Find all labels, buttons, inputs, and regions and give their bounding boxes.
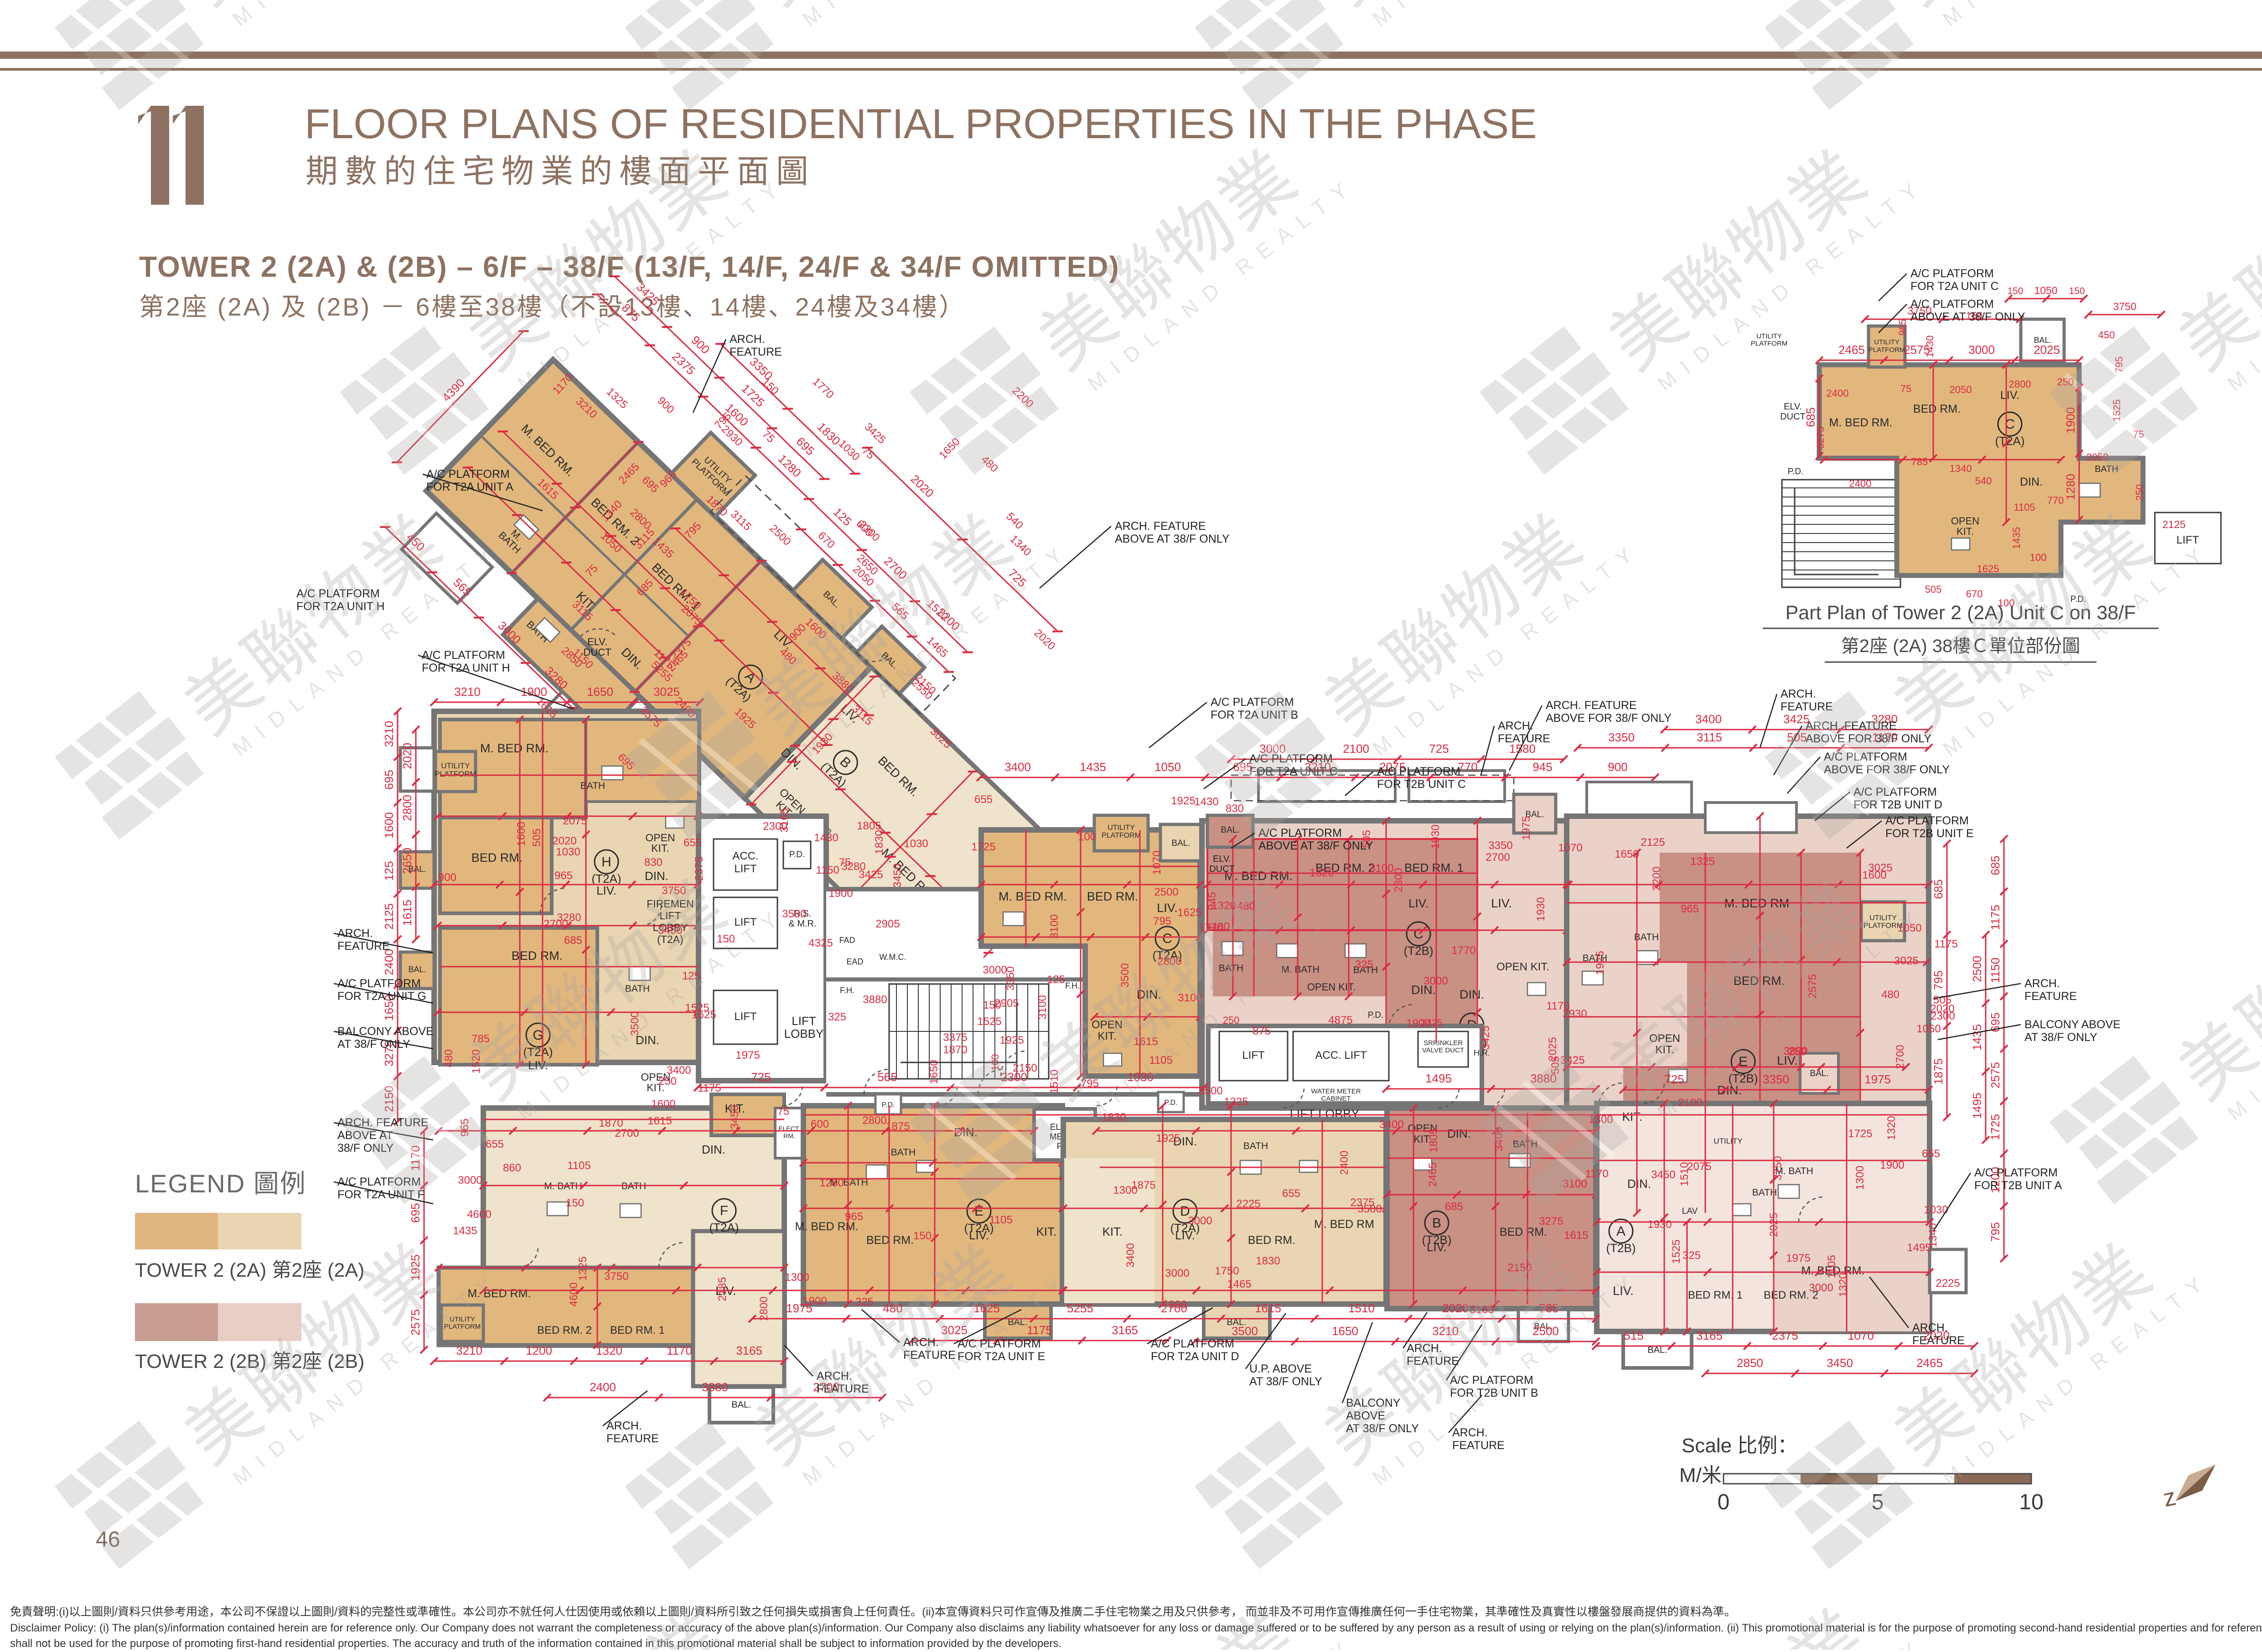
svg-text:1300: 1300 [1854, 1165, 1866, 1190]
svg-text:期數的住宅物業的樓面平面圖: 期數的住宅物業的樓面平面圖 [305, 154, 815, 190]
svg-text:P.D.: P.D. [881, 1101, 895, 1109]
svg-text:450: 450 [2098, 329, 2115, 341]
svg-text:BAL.: BAL. [1171, 839, 1190, 848]
svg-text:A/C PLATFORM: A/C PLATFORM [1910, 298, 1994, 311]
svg-text:免責聲明:(i)以上圖則/資料只供參考用途，本公司不保證以上: 免責聲明:(i)以上圖則/資料只供參考用途，本公司不保證以上圖則/資料的完整性或… [10, 1605, 1736, 1618]
svg-text:3210: 3210 [454, 685, 481, 699]
svg-text:M. BED RM: M. BED RM [1314, 1218, 1374, 1231]
svg-text:1170: 1170 [667, 1344, 692, 1357]
svg-text:3400: 3400 [1379, 1119, 1403, 1131]
svg-text:0: 0 [1718, 1490, 1730, 1514]
svg-text:LIV.: LIV. [1427, 1240, 1447, 1254]
svg-text:2150: 2150 [1013, 1062, 1037, 1074]
svg-text:FEATURE: FEATURE [606, 1432, 659, 1445]
svg-text:505: 505 [531, 829, 543, 847]
svg-text:ABOVE AT 38/F ONLY: ABOVE AT 38/F ONLY [1115, 533, 1230, 545]
svg-text:EAD: EAD [846, 957, 863, 966]
svg-text:600: 600 [811, 1118, 829, 1130]
svg-text:1870: 1870 [943, 1044, 967, 1056]
svg-text:325: 325 [1682, 1249, 1701, 1262]
svg-text:A/C PLATFORM: A/C PLATFORM [1974, 1166, 2058, 1179]
svg-text:2700: 2700 [1894, 1045, 1906, 1069]
svg-text:3400: 3400 [1695, 712, 1722, 726]
svg-text:2025: 2025 [2034, 343, 2060, 357]
svg-text:655: 655 [1282, 1187, 1300, 1200]
svg-text:KIT.: KIT. [1957, 526, 1974, 537]
svg-text:325: 325 [855, 1296, 874, 1308]
svg-text:PLATFORM: PLATFORM [435, 770, 476, 778]
svg-text:1320: 1320 [1885, 1116, 1898, 1140]
svg-text:1930: 1930 [1429, 824, 1442, 849]
svg-text:SRRINKLER: SRRINKLER [1423, 1039, 1463, 1047]
svg-text:1280: 1280 [819, 1177, 844, 1189]
svg-text:3000: 3000 [1809, 1282, 1833, 1294]
svg-text:2575: 2575 [1988, 1062, 2002, 1088]
svg-text:125: 125 [382, 861, 396, 880]
svg-text:1430: 1430 [1194, 796, 1218, 808]
svg-text:A/C PLATFORM: A/C PLATFORM [1885, 814, 1969, 827]
svg-text:LAV: LAV [1682, 1207, 1698, 1216]
svg-text:2650: 2650 [400, 848, 414, 874]
svg-text:UTILITY: UTILITY [1874, 338, 1900, 346]
svg-text:ACC.: ACC. [732, 850, 758, 862]
svg-text:685: 685 [1931, 879, 1945, 899]
svg-text:10: 10 [2019, 1490, 2043, 1514]
svg-text:1975: 1975 [1520, 816, 1532, 840]
svg-text:150: 150 [566, 1197, 584, 1209]
svg-text:3500: 3500 [1198, 1085, 1222, 1097]
svg-text:PLATFORM: PLATFORM [1102, 832, 1141, 839]
svg-text:FEATURE: FEATURE [337, 940, 390, 953]
svg-text:FEATURE: FEATURE [2024, 990, 2077, 1003]
svg-text:BED RM.: BED RM. [866, 1234, 914, 1247]
svg-text:900: 900 [1608, 760, 1627, 774]
svg-text:FOR T2B UNIT E: FOR T2B UNIT E [1885, 827, 1974, 840]
svg-text:2400: 2400 [1849, 478, 1872, 489]
svg-text:LIFT: LIFT [734, 863, 757, 875]
svg-text:3100: 3100 [1369, 862, 1393, 875]
svg-text:BATH: BATH [891, 1147, 916, 1158]
svg-text:(T2A): (T2A) [1995, 434, 2025, 448]
svg-text:ABOVE AT 38/F ONLY: ABOVE AT 38/F ONLY [1258, 839, 1373, 852]
svg-text:1510: 1510 [1348, 1301, 1375, 1315]
svg-text:1320: 1320 [1310, 867, 1334, 879]
svg-text:770: 770 [2047, 495, 2064, 506]
svg-text:AT 38/F ONLY: AT 38/F ONLY [337, 1038, 410, 1051]
svg-text:ARCH.: ARCH. [1498, 720, 1533, 732]
svg-text:75: 75 [1900, 383, 1911, 394]
svg-text:1175: 1175 [1027, 1323, 1052, 1337]
svg-text:CABINET: CABINET [1321, 1095, 1351, 1103]
svg-text:1525: 1525 [1670, 1239, 1682, 1264]
svg-text:A/C PLATFORM: A/C PLATFORM [1151, 1337, 1234, 1350]
svg-text:W.M.C.: W.M.C. [880, 953, 906, 962]
svg-text:3400: 3400 [1004, 760, 1031, 774]
svg-text:1175: 1175 [698, 1082, 721, 1094]
svg-text:2400: 2400 [382, 949, 396, 975]
svg-text:565: 565 [877, 1070, 897, 1084]
svg-text:BED RM.: BED RM. [1087, 890, 1139, 903]
svg-text:3000: 3000 [1188, 1215, 1212, 1227]
svg-text:ELV.: ELV. [1213, 854, 1231, 864]
svg-text:3350: 3350 [1004, 966, 1017, 990]
svg-text:BED RM. 2: BED RM. 2 [537, 1324, 592, 1336]
svg-text:3375: 3375 [943, 1031, 967, 1044]
svg-text:1105: 1105 [1826, 1255, 1838, 1279]
svg-text:FOR T2A UNIT C: FOR T2A UNIT C [1910, 280, 1999, 293]
svg-text:2185: 2185 [716, 1277, 729, 1301]
svg-text:2125: 2125 [2162, 518, 2185, 530]
svg-text:BED RM.: BED RM. [1913, 403, 1961, 415]
svg-text:1030: 1030 [904, 838, 928, 850]
svg-text:505: 505 [1925, 584, 1942, 595]
svg-text:1900: 1900 [1880, 1159, 1904, 1171]
svg-text:1495: 1495 [1970, 1093, 1984, 1119]
svg-text:2020: 2020 [552, 835, 576, 847]
svg-text:655: 655 [683, 837, 702, 849]
svg-text:2125: 2125 [1641, 836, 1665, 849]
svg-text:KIT.: KIT. [1036, 1225, 1057, 1238]
svg-text:1070: 1070 [1558, 842, 1582, 854]
svg-text:P.D.: P.D. [789, 850, 805, 860]
svg-text:DUCT: DUCT [1780, 412, 1806, 422]
svg-text:FLOOR PLANS OF RESIDENTIAL PRO: FLOOR PLANS OF RESIDENTIAL PROPERTIES IN… [305, 101, 1537, 147]
svg-text:1930: 1930 [1535, 897, 1547, 921]
svg-text:1725: 1725 [971, 841, 995, 853]
svg-text:FOR T2A UNIT G: FOR T2A UNIT G [337, 990, 426, 1003]
svg-text:F.H.: F.H. [840, 986, 854, 995]
svg-text:1525: 1525 [977, 1015, 1001, 1028]
svg-text:1770: 1770 [1451, 944, 1475, 957]
svg-text:3400: 3400 [667, 1064, 691, 1077]
svg-text:UTILITY: UTILITY [441, 761, 470, 770]
svg-text:830: 830 [644, 856, 663, 869]
svg-text:75: 75 [839, 856, 851, 869]
svg-text:945: 945 [1532, 760, 1552, 774]
svg-text:3025: 3025 [653, 685, 680, 699]
svg-text:3450: 3450 [1827, 1356, 1853, 1370]
svg-text:BAL.: BAL. [731, 1400, 751, 1410]
svg-text:A/C PLATFORM: A/C PLATFORM [1377, 765, 1460, 778]
svg-text:M. BED RM.: M. BED RM. [480, 741, 549, 755]
svg-text:1625: 1625 [692, 1009, 716, 1021]
svg-text:3100: 3100 [1048, 914, 1061, 938]
svg-text:795: 795 [1988, 1222, 2002, 1242]
svg-text:ARCH.: ARCH. [1781, 688, 1816, 700]
svg-text:A/C PLATFORM: A/C PLATFORM [1910, 267, 1994, 280]
svg-text:540: 540 [1975, 475, 1992, 487]
svg-text:480: 480 [1881, 989, 1900, 1001]
svg-text:2225: 2225 [1236, 1198, 1260, 1210]
svg-text:3450: 3450 [891, 863, 904, 887]
svg-text:2050: 2050 [1950, 384, 1972, 395]
svg-text:1325: 1325 [1224, 1096, 1248, 1108]
svg-text:1320: 1320 [1837, 1273, 1849, 1297]
svg-text:ACC. LIFT: ACC. LIFT [1315, 1049, 1367, 1062]
svg-text:DIN.: DIN. [645, 869, 668, 883]
svg-text:U.P. ABOVE: U.P. ABOVE [1249, 1362, 1312, 1375]
svg-text:2850: 2850 [1737, 1356, 1763, 1370]
svg-text:685: 685 [1988, 855, 2002, 875]
svg-text:TOWER 2 (2A) 第2座 (2A): TOWER 2 (2A) 第2座 (2A) [135, 1259, 364, 1281]
svg-text:2700: 2700 [1486, 851, 1510, 864]
svg-text:2800: 2800 [758, 1296, 770, 1321]
svg-text:3100: 3100 [1036, 995, 1049, 1019]
svg-text:2465: 2465 [1838, 343, 1865, 357]
svg-text:1725: 1725 [1988, 1114, 2002, 1140]
svg-text:F: F [720, 1203, 728, 1218]
svg-text:1105: 1105 [2014, 502, 2035, 513]
svg-text:2075: 2075 [563, 815, 587, 827]
svg-text:3880: 3880 [863, 994, 887, 1006]
svg-text:AT 38/F ONLY: AT 38/F ONLY [1249, 1375, 1322, 1388]
svg-text:1650: 1650 [587, 685, 613, 699]
svg-text:2400: 2400 [1338, 1150, 1351, 1175]
svg-text:3750: 3750 [604, 1270, 628, 1283]
svg-text:2800: 2800 [2009, 378, 2031, 390]
svg-text:LIFT: LIFT [792, 1014, 816, 1028]
svg-text:3165: 3165 [736, 1344, 762, 1357]
svg-text:900: 900 [1169, 1299, 1187, 1311]
svg-text:FOR T2A UNIT H: FOR T2A UNIT H [422, 662, 510, 674]
svg-text:P.D.: P.D. [1788, 467, 1804, 476]
svg-text:1875: 1875 [885, 1120, 910, 1133]
svg-text:795: 795 [1931, 970, 1945, 990]
svg-text:150: 150 [913, 1230, 932, 1242]
svg-text:1435: 1435 [1970, 1024, 1984, 1051]
svg-text:BATH: BATH [1243, 1141, 1268, 1151]
svg-text:3210: 3210 [456, 1344, 482, 1357]
svg-text:325: 325 [1355, 958, 1373, 971]
svg-text:2300: 2300 [1931, 1010, 1955, 1022]
svg-text:695: 695 [409, 1203, 422, 1222]
svg-text:685: 685 [1445, 1201, 1463, 1213]
svg-text:LIFT: LIFT [734, 1010, 757, 1023]
svg-text:655: 655 [974, 793, 993, 806]
svg-text:DIN.: DIN. [1627, 1177, 1651, 1191]
svg-text:1600: 1600 [1862, 869, 1886, 881]
svg-text:1625: 1625 [1977, 563, 1999, 575]
svg-text:H: H [601, 854, 611, 870]
svg-text:DUCT: DUCT [1209, 864, 1235, 874]
svg-text:1750: 1750 [1215, 1265, 1239, 1277]
svg-text:DIN.: DIN. [702, 1143, 725, 1156]
svg-text:LIFT: LIFT [1242, 1049, 1265, 1062]
svg-text:1650: 1650 [1332, 1324, 1358, 1338]
svg-text:Scale 比例：: Scale 比例： [1682, 1434, 1797, 1457]
svg-text:BED RM. 1: BED RM. 1 [610, 1324, 665, 1336]
svg-text:2400: 2400 [590, 1380, 616, 1394]
svg-text:UTILITY: UTILITY [1756, 332, 1782, 340]
svg-text:2375: 2375 [1772, 1329, 1798, 1342]
svg-text:1105: 1105 [989, 1214, 1013, 1226]
svg-text:OPEN: OPEN [1951, 515, 1979, 527]
svg-text:1200: 1200 [526, 1344, 552, 1357]
svg-text:4600: 4600 [467, 1208, 491, 1221]
svg-text:2225: 2225 [1936, 1277, 1960, 1289]
svg-text:1030: 1030 [556, 846, 580, 858]
svg-text:UTILITY: UTILITY [1108, 824, 1135, 832]
svg-text:725: 725 [751, 1070, 771, 1084]
svg-text:3350: 3350 [1488, 839, 1512, 852]
svg-text:BATH: BATH [1634, 932, 1659, 943]
svg-text:1805: 1805 [1428, 1128, 1440, 1152]
svg-text:1900: 1900 [828, 887, 853, 900]
svg-text:1725: 1725 [1848, 1128, 1872, 1140]
svg-text:150: 150 [2007, 286, 2023, 296]
svg-text:75: 75 [777, 1105, 790, 1118]
svg-text:965: 965 [845, 1211, 863, 1223]
svg-text:1870: 1870 [599, 1117, 623, 1129]
svg-text:1430: 1430 [814, 832, 838, 844]
svg-text:AT 38/F ONLY: AT 38/F ONLY [2024, 1031, 2097, 1044]
svg-text:695: 695 [382, 770, 396, 789]
svg-text:3450: 3450 [729, 1105, 741, 1129]
svg-text:685: 685 [564, 934, 582, 947]
svg-text:2375: 2375 [1350, 1196, 1374, 1209]
svg-text:LIV.: LIV. [1175, 1228, 1195, 1242]
svg-text:325: 325 [828, 1011, 846, 1023]
svg-text:C: C [1413, 927, 1423, 942]
svg-text:DIN.: DIN. [1460, 988, 1484, 1001]
svg-text:1435: 1435 [2011, 527, 2022, 549]
svg-text:BALCONY ABOVE: BALCONY ABOVE [337, 1025, 434, 1038]
svg-text:2025: 2025 [1768, 1212, 1780, 1237]
svg-text:1175: 1175 [1934, 938, 1958, 950]
svg-text:DUCT: DUCT [583, 647, 611, 658]
svg-text:480: 480 [443, 1049, 455, 1067]
svg-text:Disclaimer Policy: (i) The pla: Disclaimer Policy: (i) The plan(s)/infor… [10, 1622, 2262, 1634]
svg-text:1925: 1925 [999, 1034, 1024, 1046]
svg-text:3165: 3165 [1112, 1323, 1138, 1337]
svg-text:3165: 3165 [1696, 1329, 1723, 1342]
svg-text:DIN.: DIN. [1447, 1127, 1471, 1140]
svg-text:LIV.: LIV. [1408, 896, 1429, 910]
svg-text:2500: 2500 [1970, 956, 1984, 982]
svg-text:3350: 3350 [1608, 730, 1635, 744]
svg-text:ELV.: ELV. [587, 636, 607, 647]
svg-text:FOR T2B UNIT A: FOR T2B UNIT A [1974, 1179, 2062, 1192]
svg-text:3025: 3025 [1894, 955, 1918, 967]
svg-text:655: 655 [486, 1138, 504, 1150]
svg-text:1615: 1615 [1564, 1229, 1588, 1242]
svg-text:1050: 1050 [2034, 285, 2057, 296]
svg-text:2930: 2930 [1563, 1008, 1587, 1020]
svg-text:2800: 2800 [400, 795, 414, 821]
svg-text:PLATFORM: PLATFORM [1751, 340, 1788, 347]
svg-text:LIV.: LIV. [2000, 389, 2019, 402]
svg-text:725: 725 [1429, 742, 1449, 756]
svg-text:BAL.: BAL. [1810, 1069, 1828, 1078]
svg-text:900: 900 [438, 871, 456, 884]
svg-text:BED RM. 1: BED RM. 1 [1688, 1289, 1743, 1301]
svg-text:WATER METER: WATER METER [1311, 1088, 1361, 1095]
svg-text:(T2A): (T2A) [709, 1221, 739, 1234]
svg-text:3000: 3000 [1968, 343, 1995, 357]
svg-text:1930: 1930 [1647, 1218, 1672, 1231]
svg-text:4325: 4325 [808, 937, 833, 949]
svg-text:3210: 3210 [382, 721, 396, 747]
svg-text:670: 670 [1966, 588, 1983, 600]
svg-text:3115: 3115 [1697, 730, 1722, 744]
svg-text:1650: 1650 [1615, 848, 1639, 860]
svg-text:150: 150 [2069, 286, 2085, 296]
svg-text:2075: 2075 [1687, 1160, 1711, 1173]
svg-text:KIT.: KIT. [651, 842, 669, 854]
svg-text:BED RM.: BED RM. [471, 851, 523, 865]
svg-text:770: 770 [1458, 760, 1477, 774]
svg-text:2400: 2400 [1827, 388, 1849, 399]
svg-text:1325: 1325 [577, 1256, 589, 1280]
svg-text:A/C PLATFORM: A/C PLATFORM [422, 649, 505, 662]
svg-text:1600: 1600 [651, 1098, 675, 1110]
svg-text:2025: 2025 [1547, 1037, 1559, 1061]
svg-text:UTILITY: UTILITY [1713, 1137, 1742, 1145]
svg-text:2125: 2125 [382, 903, 396, 930]
svg-text:1925: 1925 [1171, 795, 1195, 807]
svg-text:3750: 3750 [2113, 300, 2136, 312]
svg-text:1925: 1925 [1156, 1132, 1180, 1144]
svg-text:OPEN KIT.: OPEN KIT. [1496, 961, 1549, 973]
svg-text:1900: 1900 [802, 1295, 827, 1307]
svg-text:& M.R.: & M.R. [788, 919, 816, 929]
svg-text:1300: 1300 [1113, 1184, 1137, 1196]
svg-text:3880: 3880 [1783, 1045, 1807, 1057]
svg-text:RM.: RM. [783, 1132, 795, 1139]
svg-text:685: 685 [1804, 407, 1817, 427]
svg-text:1320: 1320 [596, 1344, 622, 1357]
svg-text:1615: 1615 [647, 1115, 672, 1127]
svg-text:LEGEND 圖例: LEGEND 圖例 [135, 1169, 306, 1198]
svg-text:ARCH.: ARCH. [2024, 977, 2060, 990]
svg-text:1050: 1050 [1154, 760, 1181, 774]
svg-text:1615: 1615 [1255, 1301, 1281, 1315]
svg-text:1600: 1600 [515, 822, 528, 846]
svg-text:3000: 3000 [1165, 1267, 1189, 1279]
svg-text:ARCH.: ARCH. [1912, 1321, 1948, 1334]
svg-text:1600: 1600 [382, 812, 396, 839]
svg-text:1495: 1495 [1425, 1072, 1452, 1085]
svg-text:P.D.: P.D. [1368, 1010, 1384, 1020]
svg-text:1070: 1070 [1848, 1329, 1874, 1342]
svg-text:B: B [1432, 1216, 1441, 1231]
svg-text:ARCH. FEATURE: ARCH. FEATURE [1546, 699, 1637, 712]
svg-text:3425: 3425 [1480, 1025, 1492, 1050]
svg-text:ELV.: ELV. [1784, 402, 1802, 412]
svg-text:3275: 3275 [1815, 427, 1826, 449]
svg-text:1340: 1340 [1950, 463, 1972, 474]
svg-text:1900: 1900 [1406, 1017, 1430, 1030]
svg-text:BAL.: BAL. [1221, 825, 1239, 835]
svg-text:A/C PLATFORM: A/C PLATFORM [337, 977, 421, 990]
svg-text:965: 965 [554, 870, 573, 882]
svg-text:3000: 3000 [983, 964, 1007, 976]
svg-text:100: 100 [1078, 831, 1096, 843]
svg-text:1650: 1650 [928, 1060, 940, 1084]
svg-text:ABOVE FOR 38/F ONLY: ABOVE FOR 38/F ONLY [1546, 712, 1672, 725]
svg-text:ARCH. FEATURE: ARCH. FEATURE [1115, 520, 1206, 533]
svg-text:1510: 1510 [1678, 1162, 1691, 1186]
svg-text:1300: 1300 [785, 1271, 809, 1284]
svg-text:KIT.: KIT. [1103, 1225, 1123, 1238]
svg-text:1975: 1975 [1786, 1252, 1810, 1264]
svg-text:(T2B): (T2B) [1404, 944, 1434, 958]
svg-text:FAD: FAD [839, 936, 855, 945]
svg-text:2905: 2905 [875, 918, 900, 930]
svg-text:655: 655 [1922, 1148, 1940, 1160]
svg-text:1340: 1340 [1927, 1223, 1939, 1247]
svg-text:3500: 3500 [1232, 1324, 1258, 1338]
